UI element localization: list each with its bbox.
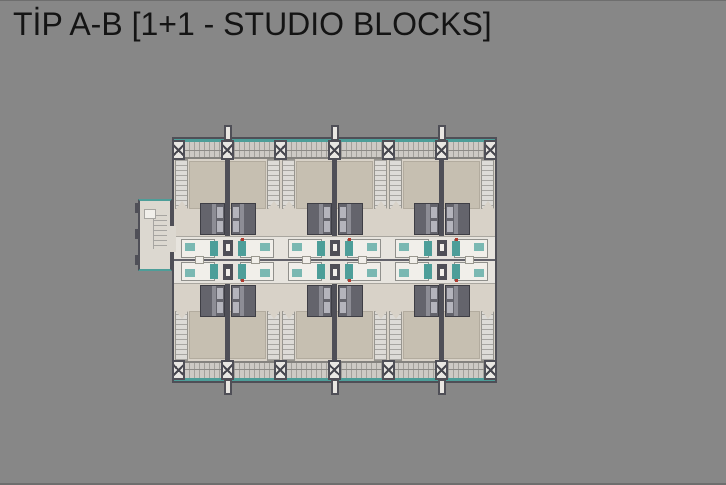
column-stub [135, 229, 140, 239]
marker-dot [455, 279, 458, 282]
entry-door [223, 240, 233, 256]
entry-door [223, 264, 233, 280]
page-title: TİP A-B [1+1 - STUDIO BLOCKS] [13, 6, 492, 43]
bathroom-strip [281, 236, 388, 260]
counter [238, 241, 246, 256]
column-stub [331, 125, 339, 141]
bed [338, 203, 363, 235]
sink-counter [399, 243, 409, 251]
marker-dot [241, 279, 244, 282]
bathroom-strip [281, 260, 388, 284]
marker-dot [241, 238, 244, 241]
column-stub [135, 255, 140, 265]
bathroom-strip [388, 236, 495, 260]
counter [317, 264, 325, 279]
column-stub [438, 125, 446, 141]
bed [231, 285, 256, 317]
sink-counter [399, 269, 409, 277]
bed [200, 285, 225, 317]
column-stub [331, 379, 339, 395]
staircase [389, 311, 402, 361]
staircase [282, 311, 295, 361]
stair-treads [153, 215, 167, 249]
balcony [281, 361, 388, 381]
staircase [374, 311, 387, 361]
counter [452, 264, 460, 279]
bed [414, 203, 439, 235]
bed [445, 203, 470, 235]
bathroom-strip [174, 236, 281, 260]
living-area [281, 284, 388, 361]
counter [210, 241, 218, 256]
entry-door [330, 264, 340, 280]
living-area [174, 159, 281, 236]
bed [231, 203, 256, 235]
sink-counter [474, 269, 484, 277]
balcony [388, 139, 495, 159]
column-stub [135, 203, 140, 213]
living-area [174, 284, 281, 361]
floor-plan [138, 118, 500, 400]
staircase [267, 311, 280, 361]
door-threshold [465, 256, 474, 264]
bed [307, 203, 332, 235]
studio-unit-pair [174, 139, 281, 260]
bed [445, 285, 470, 317]
counter [424, 264, 432, 279]
entry-door [437, 264, 447, 280]
studio-block [172, 137, 497, 383]
partition-wall [225, 284, 230, 361]
landing [144, 209, 156, 219]
door-threshold [251, 256, 260, 264]
staircase [175, 311, 188, 361]
bed [338, 285, 363, 317]
sink-counter [292, 243, 302, 251]
counter [424, 241, 432, 256]
counter [238, 264, 246, 279]
marker-dot [348, 238, 351, 241]
living-area [388, 284, 495, 361]
partition-wall [332, 284, 337, 361]
sink-counter [185, 243, 195, 251]
bathroom-strip [174, 260, 281, 284]
door-threshold [409, 256, 418, 264]
staircase [481, 311, 494, 361]
living-area [388, 159, 495, 236]
entry-opening [168, 226, 176, 252]
top-edge-line [0, 0, 726, 1]
counter [317, 241, 325, 256]
entry-door [330, 240, 340, 256]
staircase [282, 159, 295, 209]
counter [210, 264, 218, 279]
studio-unit-pair [174, 260, 281, 381]
sink-counter [260, 269, 270, 277]
unit-row-top [174, 139, 495, 260]
sink-counter [474, 243, 484, 251]
staircase [175, 159, 188, 209]
unit-row-bottom [174, 260, 495, 381]
staircase [389, 159, 402, 209]
bed [307, 285, 332, 317]
studio-unit-pair [388, 139, 495, 260]
partition-wall [439, 284, 444, 361]
sink-counter [367, 243, 377, 251]
living-area [281, 159, 388, 236]
column-stub [438, 379, 446, 395]
balcony [281, 139, 388, 159]
external-staircase [138, 199, 172, 271]
marker-dot [348, 279, 351, 282]
door-threshold [302, 256, 311, 264]
sink-counter [185, 269, 195, 277]
sink-counter [367, 269, 377, 277]
bathroom-strip [388, 260, 495, 284]
studio-unit-pair [281, 139, 388, 260]
bed [414, 285, 439, 317]
counter [345, 241, 353, 256]
column-stub [224, 379, 232, 395]
partition-wall [225, 159, 230, 236]
counter [345, 264, 353, 279]
marker-dot [455, 238, 458, 241]
bed [200, 203, 225, 235]
sink-counter [260, 243, 270, 251]
partition-wall [332, 159, 337, 236]
counter [452, 241, 460, 256]
door-threshold [358, 256, 367, 264]
entry-door [437, 240, 447, 256]
studio-unit-pair [388, 260, 495, 381]
staircase [481, 159, 494, 209]
staircase [267, 159, 280, 209]
balcony [174, 139, 281, 159]
balcony [388, 361, 495, 381]
balcony [174, 361, 281, 381]
staircase [374, 159, 387, 209]
partition-wall [439, 159, 444, 236]
door-threshold [195, 256, 204, 264]
sink-counter [292, 269, 302, 277]
studio-unit-pair [281, 260, 388, 381]
column-stub [224, 125, 232, 141]
